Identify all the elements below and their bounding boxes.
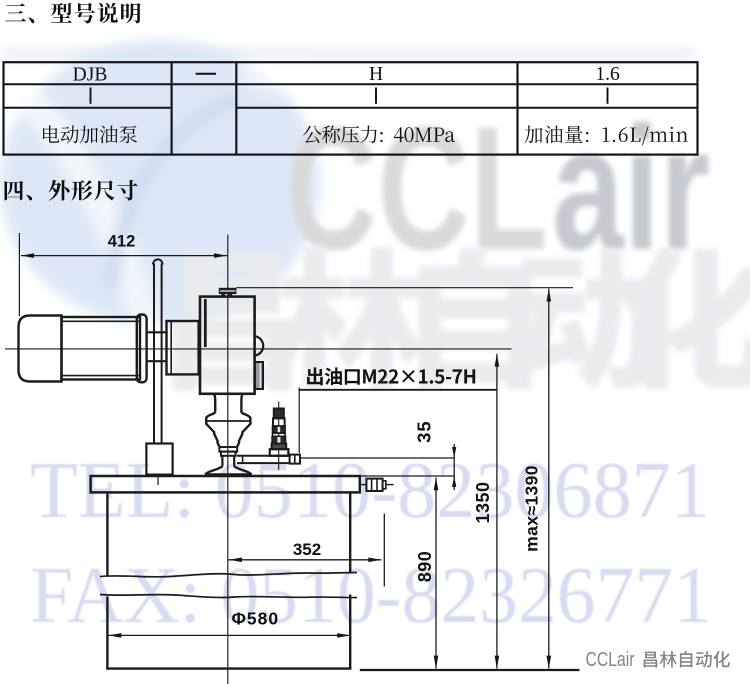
svg-text:35: 35 (414, 420, 435, 443)
svg-text:1.6: 1.6 (595, 64, 620, 85)
svg-text:Φ580: Φ580 (232, 609, 280, 629)
svg-text:max≈1390: max≈1390 (522, 465, 542, 552)
svg-text:H: H (369, 64, 383, 85)
svg-text:890: 890 (415, 551, 435, 583)
svg-text:352: 352 (293, 540, 321, 559)
svg-text:air: air (552, 91, 710, 287)
svg-text:FAX: 0510-82326771: FAX: 0510-82326771 (30, 552, 712, 640)
svg-text:DJB: DJB (73, 65, 108, 86)
svg-text:412: 412 (108, 233, 136, 251)
svg-text:1350: 1350 (473, 481, 493, 523)
svg-text:CCLair: CCLair (586, 648, 635, 671)
